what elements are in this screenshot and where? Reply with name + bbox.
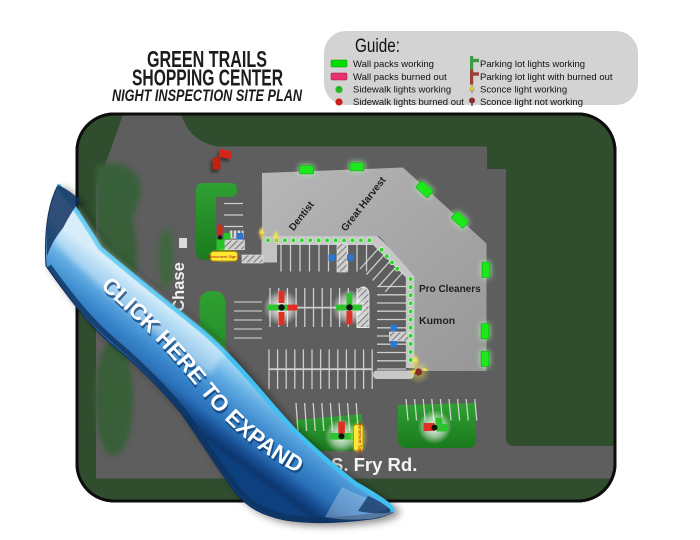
svg-text:Monument Sign 2: Monument Sign 2 <box>357 422 362 458</box>
svg-text:Parking lot lights working: Parking lot lights working <box>480 59 585 70</box>
svg-text:Sconce light working: Sconce light working <box>480 85 567 96</box>
svg-text:Kumon: Kumon <box>419 315 455 327</box>
svg-text:NIGHT INSPECTION SITE PLAN: NIGHT INSPECTION SITE PLAN <box>112 87 303 105</box>
svg-text:Sidewalk lights burned out: Sidewalk lights burned out <box>353 97 464 108</box>
svg-text:Parking lot light with burned: Parking lot light with burned out <box>480 72 613 83</box>
svg-text:Pro Cleaners: Pro Cleaners <box>419 284 481 295</box>
svg-text:Wall packs working: Wall packs working <box>353 59 434 70</box>
svg-text:Sidewalk lights working: Sidewalk lights working <box>353 85 451 96</box>
svg-text:Wall packs burned out: Wall packs burned out <box>353 72 447 83</box>
svg-text:Monument Sign 1: Monument Sign 1 <box>208 254 240 259</box>
svg-text:Chase: Chase <box>170 262 188 312</box>
svg-text:Guide:: Guide: <box>355 36 400 57</box>
svg-text:Sconce light not working: Sconce light not working <box>480 97 583 108</box>
